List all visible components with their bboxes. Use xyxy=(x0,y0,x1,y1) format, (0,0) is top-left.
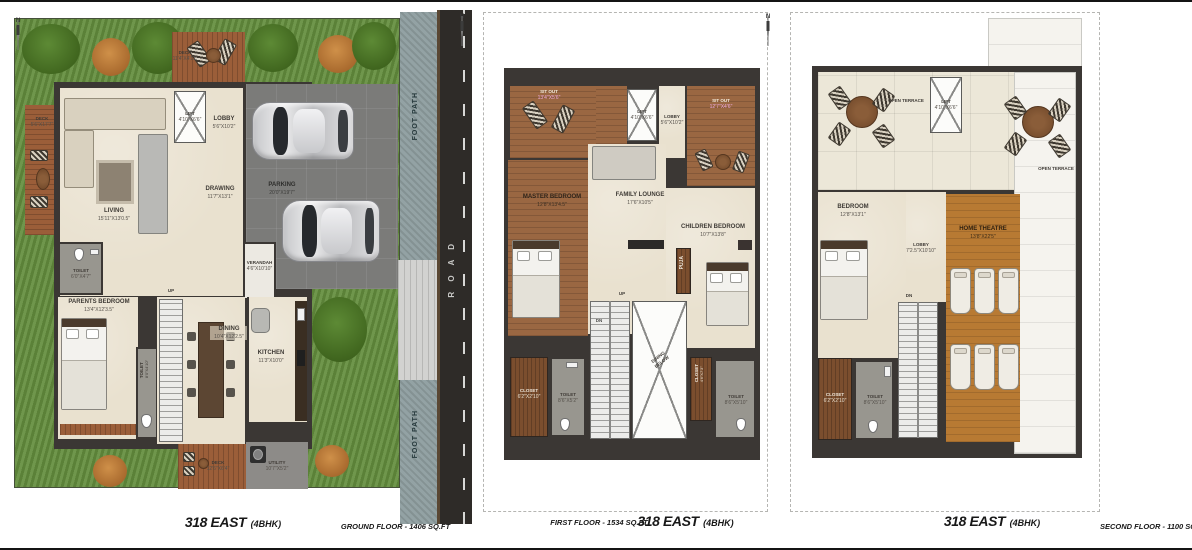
terrace-extension xyxy=(988,18,1082,72)
plan-second: N OPEN TERRACE LIFT4'10"X6'6" OPEN TERRA… xyxy=(0,2,1192,550)
recliner-seat-icon xyxy=(998,268,1019,314)
pillow-icon xyxy=(846,251,860,261)
headrest xyxy=(1002,348,1015,354)
headrest xyxy=(978,348,991,354)
recliner-seat-icon xyxy=(974,268,995,314)
lift-shaft: LIFT4'10"X6'6" xyxy=(930,77,962,133)
bed-headboard xyxy=(821,241,867,249)
headrest xyxy=(1002,272,1015,278)
stairs-dn-label: DN xyxy=(900,293,918,299)
floor-plans-canvas: FOOT PATH FOOT PATH R O A D DECK11'4"X4'… xyxy=(0,0,1192,550)
north-compass-icon: N xyxy=(758,14,778,38)
bed-blanket xyxy=(821,276,867,319)
room-label-theatre: HOME THEATRE13'8"X22'5" xyxy=(946,226,1020,240)
room-label-bedroom: BEDROOM12'8"X13'1" xyxy=(827,204,879,218)
room-label-terrace-right: OPEN TERRACE xyxy=(1036,166,1076,172)
recliner-seat-icon xyxy=(974,344,995,390)
compass-dial xyxy=(767,19,769,38)
recliner-seat-icon xyxy=(950,344,971,390)
recliner-seat-icon xyxy=(950,268,971,314)
room-label-closet: CLOSET6'2"X2'10" xyxy=(820,392,850,404)
headrest xyxy=(954,348,967,354)
stair-divider xyxy=(917,302,919,438)
room-label-lift: LIFT4'10"X6'6" xyxy=(935,99,958,111)
room-label-lobby: LOBBY7'2.5"X10'10" xyxy=(896,242,946,254)
room-label-toilet: TOILET8'6"X5'10" xyxy=(860,394,890,406)
plan-title-second: 318 EAST (4BHK) xyxy=(933,513,1051,531)
sink-icon xyxy=(884,366,891,377)
headrest xyxy=(954,272,967,278)
plan-caption-second: SECOND FLOOR - 1100 SQ.FT xyxy=(1100,522,1190,531)
room-label-terrace-top: OPEN TERRACE xyxy=(886,98,926,104)
recliner-seat-icon xyxy=(998,344,1019,390)
bed-icon xyxy=(820,240,868,320)
headrest xyxy=(978,272,991,278)
pillow-icon xyxy=(825,251,839,261)
